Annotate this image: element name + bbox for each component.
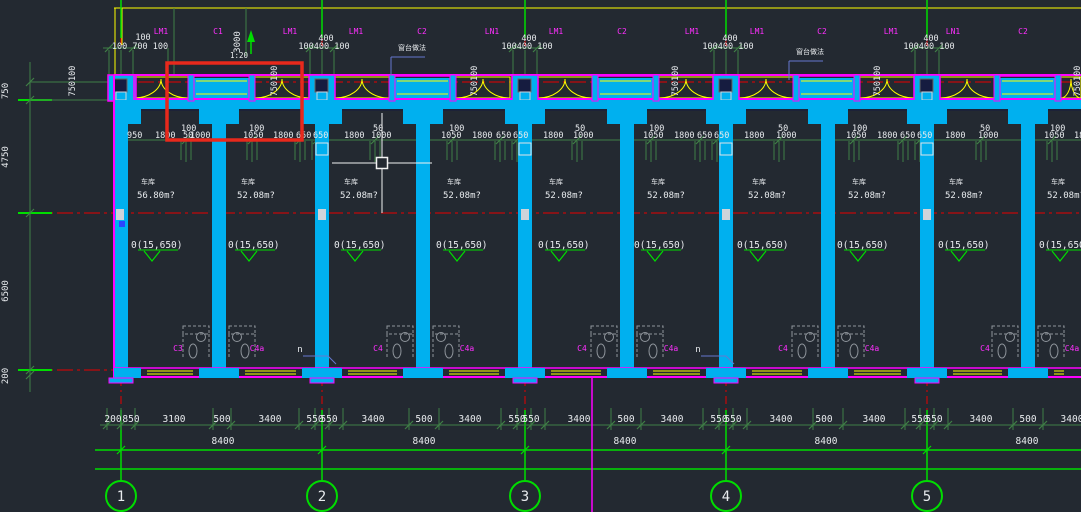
wall-base-tab bbox=[513, 378, 537, 383]
room-dim-text: 1050 bbox=[846, 131, 866, 141]
structural-column bbox=[719, 79, 732, 92]
room-area-label: 56.80m? bbox=[137, 191, 175, 201]
door-fixture-icon bbox=[838, 326, 864, 334]
door-fixture-icon bbox=[998, 344, 1006, 358]
elevation-triangle-icon bbox=[1052, 251, 1068, 261]
pier-dim-text: 750100 bbox=[470, 66, 480, 97]
room-name-label: 车库 bbox=[141, 177, 155, 186]
door-fixture-icon bbox=[189, 344, 197, 358]
door-type-label: C4a bbox=[664, 344, 679, 353]
room-dim-text: 1800 bbox=[674, 131, 694, 141]
door-type-label: C3 bbox=[173, 344, 183, 353]
elevation-text: 0(15,650) bbox=[938, 240, 989, 251]
grid-bubble-number: 1 bbox=[117, 489, 125, 505]
elevation-text: 0(15,650) bbox=[131, 240, 182, 251]
bottom-wall-pier bbox=[808, 368, 848, 378]
door-fixture-icon bbox=[229, 326, 255, 334]
room-area-label: 52.08m? bbox=[545, 191, 583, 201]
window-pier bbox=[1055, 75, 1061, 101]
bottom-dim-text: 3400 bbox=[661, 414, 684, 425]
bottom-dim-text: 3400 bbox=[568, 414, 591, 425]
bottom-dim-text: 550 bbox=[320, 414, 337, 425]
left-dim-text: 200 bbox=[1, 368, 11, 384]
door-type-label: C4a bbox=[865, 344, 880, 353]
wall-node-marker bbox=[116, 209, 124, 220]
pier-dim-text: 750100 bbox=[270, 66, 280, 97]
bay-total-text: 8400 bbox=[614, 436, 637, 447]
door-type-label: C4a bbox=[460, 344, 475, 353]
room-area-label: 52.08m? bbox=[443, 191, 481, 201]
room-name-label: 车库 bbox=[752, 177, 766, 186]
window-pier bbox=[854, 75, 860, 101]
bottom-dim-text: 500 bbox=[617, 414, 634, 425]
elevation-text: 0(15,650) bbox=[1039, 240, 1081, 251]
room-dim-text: 650 bbox=[313, 131, 328, 141]
elevation-triangle-icon bbox=[750, 251, 766, 261]
window-type-label: LN1 bbox=[485, 27, 500, 36]
bottom-dim-text: 3400 bbox=[770, 414, 793, 425]
door-fixture-icon bbox=[591, 326, 617, 334]
room-name-label: 车库 bbox=[1051, 177, 1065, 186]
room-dim-text: 1800 bbox=[744, 131, 764, 141]
room-dim-text: 1800 bbox=[344, 131, 364, 141]
door-fixture-icon bbox=[433, 326, 459, 334]
wall-base-tab bbox=[310, 378, 334, 383]
bottom-dim-text: 500 bbox=[213, 414, 230, 425]
vert-dim-text: 3000 bbox=[233, 31, 243, 53]
window-type-label: LM1 bbox=[154, 27, 169, 36]
bay-total-text: 8400 bbox=[413, 436, 436, 447]
elevation-triangle-icon bbox=[551, 251, 567, 261]
room-area-label: 52.08m? bbox=[848, 191, 886, 201]
grid-bubble-number: 2 bbox=[318, 489, 326, 505]
room-name-label: 车库 bbox=[651, 177, 665, 186]
bottom-wall-pier bbox=[706, 368, 746, 378]
room-dim-text: 650 bbox=[513, 131, 528, 141]
room-name-label: 车库 bbox=[241, 177, 255, 186]
top-dim-text: 100400 100 bbox=[298, 42, 349, 52]
bottom-dim-text: 3400 bbox=[863, 414, 886, 425]
elevation-triangle-icon bbox=[241, 251, 257, 261]
section-mark-label: n bbox=[297, 345, 302, 355]
room-dim-text: 1050 bbox=[441, 131, 461, 141]
window-type-label: LM1 bbox=[884, 27, 899, 36]
top-dim-text: 100400 100 bbox=[702, 42, 753, 52]
top-dim-text: 100400 100 bbox=[501, 42, 552, 52]
door-type-label: C4 bbox=[373, 344, 383, 353]
grid-bubble-number: 5 bbox=[923, 489, 931, 505]
elevation-text: 0(15,650) bbox=[228, 240, 279, 251]
room-area-label: 52.08m? bbox=[748, 191, 786, 201]
crosshair-pickbox[interactable] bbox=[377, 158, 388, 169]
wall bbox=[821, 100, 835, 368]
elevation-text: 0(15,650) bbox=[837, 240, 888, 251]
door-fixture-icon bbox=[445, 344, 453, 358]
room-dim-text: 650 bbox=[496, 131, 511, 141]
bottom-wall-pier bbox=[302, 368, 342, 378]
room-name-label: 车库 bbox=[549, 177, 563, 186]
bottom-dim-text: 3400 bbox=[1061, 414, 1081, 425]
window-pier bbox=[592, 75, 598, 101]
bay-total-text: 8400 bbox=[1016, 436, 1039, 447]
callout-text: 窗台做法 bbox=[796, 47, 824, 56]
top-dim-text: 100 700 100 bbox=[112, 42, 168, 52]
bottom-wall-pier bbox=[505, 368, 545, 378]
structural-column bbox=[518, 79, 531, 92]
elevation-triangle-icon bbox=[347, 251, 363, 261]
elevation-triangle-icon bbox=[951, 251, 967, 261]
elevation-text: 0(15,650) bbox=[334, 240, 385, 251]
door-fixture-icon bbox=[637, 326, 663, 334]
structural-column bbox=[114, 79, 127, 92]
window-pier bbox=[994, 75, 1000, 101]
grid-bubble-number: 4 bbox=[722, 489, 730, 505]
door-type-label: C4 bbox=[778, 344, 788, 353]
elevation-triangle-icon bbox=[850, 251, 866, 261]
selection-grip bbox=[119, 221, 125, 227]
window-type-label: LM1 bbox=[549, 27, 564, 36]
bottom-dim-text: 850 bbox=[122, 414, 139, 425]
cad-drawing-canvas[interactable]: 12345LM1C1LM1LM1C2LN1LM1C2LM1LM1C2LM1LN1… bbox=[0, 0, 1081, 512]
window-pier bbox=[653, 75, 659, 101]
wall-node-marker bbox=[923, 209, 931, 220]
pier-dim-text: 750100 bbox=[873, 66, 883, 97]
door-fixture-icon bbox=[597, 344, 605, 358]
door-fixture-icon bbox=[850, 344, 858, 358]
door-fixture-icon bbox=[798, 344, 806, 358]
bottom-dim-text: 3400 bbox=[459, 414, 482, 425]
window-type-label: LM1 bbox=[685, 27, 700, 36]
wall-base-tab bbox=[915, 378, 939, 383]
slope-arrow-head-icon bbox=[247, 30, 255, 42]
door-type-label: C4a bbox=[1065, 344, 1080, 353]
window-type-label: C2 bbox=[417, 27, 427, 36]
room-dim-text: 1050 bbox=[1044, 131, 1064, 141]
room-dim-text: 1000 bbox=[978, 131, 998, 141]
bottom-wall-pier bbox=[199, 368, 239, 378]
room-dim-text: 1800 bbox=[543, 131, 563, 141]
door-type-label: C4 bbox=[577, 344, 587, 353]
left-dim-text: 4750 bbox=[1, 146, 11, 168]
wall bbox=[416, 100, 430, 368]
window-pier bbox=[249, 75, 255, 101]
window-pier bbox=[188, 75, 194, 101]
bottom-dim-text: 3400 bbox=[362, 414, 385, 425]
elevation-triangle-icon bbox=[647, 251, 663, 261]
structural-column bbox=[315, 79, 328, 92]
room-dim-text: 1800 bbox=[1074, 131, 1081, 141]
room-area-label: 52.08m? bbox=[945, 191, 983, 201]
wall bbox=[1021, 100, 1035, 368]
room-dim-text: 650 bbox=[900, 131, 915, 141]
door-fixture-icon bbox=[792, 326, 818, 334]
bottom-dim-text: 550 bbox=[522, 414, 539, 425]
section-mark-label: n bbox=[695, 345, 700, 355]
room-dim-text: 650 bbox=[714, 131, 729, 141]
structural-column bbox=[920, 79, 933, 92]
window-type-label: LM1 bbox=[750, 27, 765, 36]
bottom-wall-pier bbox=[403, 368, 443, 378]
left-dim-text: 750 bbox=[1, 83, 11, 99]
bottom-dim-text: 3400 bbox=[970, 414, 993, 425]
elevation-triangle-icon bbox=[449, 251, 465, 261]
bay-total-text: 8400 bbox=[815, 436, 838, 447]
bottom-wall-pier bbox=[607, 368, 647, 378]
bottom-dim-text: 550 bbox=[724, 414, 741, 425]
door-fixture-icon bbox=[393, 344, 401, 358]
bottom-wall-pier bbox=[114, 368, 141, 378]
window-type-label: C1 bbox=[213, 27, 223, 36]
bay-total-text: 8400 bbox=[212, 436, 235, 447]
elevation-text: 0(15,650) bbox=[634, 240, 685, 251]
bottom-dim-text: 3100 bbox=[163, 414, 186, 425]
top-dim-text: 100400 100 bbox=[903, 42, 954, 52]
grid-bubble-number: 3 bbox=[521, 489, 529, 505]
room-dim-text: 1050 bbox=[643, 131, 663, 141]
elevation-triangle-icon bbox=[144, 251, 160, 261]
room-name-label: 车库 bbox=[447, 177, 461, 186]
window-type-label: C2 bbox=[617, 27, 627, 36]
pier-dim-text: 750100 bbox=[1073, 66, 1081, 97]
room-area-label: 52.08m? bbox=[647, 191, 685, 201]
room-dim-text: 1000 bbox=[371, 131, 391, 141]
wall-base-tab bbox=[714, 378, 738, 383]
window-type-label: LN1 bbox=[946, 27, 961, 36]
window-type-label: C2 bbox=[1018, 27, 1028, 36]
window-pier bbox=[389, 75, 395, 101]
window-type-label: LM1 bbox=[283, 27, 298, 36]
room-name-label: 车库 bbox=[852, 177, 866, 186]
door-type-label: C4 bbox=[980, 344, 990, 353]
room-dim-text: 650 bbox=[917, 131, 932, 141]
room-dim-text: 1800 bbox=[877, 131, 897, 141]
pier-dim-text: 750100 bbox=[68, 66, 78, 97]
bottom-dim-text: 200 bbox=[104, 414, 121, 425]
wall-node-marker bbox=[722, 209, 730, 220]
floor-plan-svg: 12345LM1C1LM1LM1C2LN1LM1C2LM1LM1C2LM1LN1… bbox=[0, 0, 1081, 512]
door-fixture-icon bbox=[241, 344, 249, 358]
left-dim-text: 6500 bbox=[1, 280, 11, 302]
callout-text: 窗台做法 bbox=[398, 43, 426, 52]
door-fixture-icon bbox=[183, 326, 209, 334]
pier-dim-text: 750100 bbox=[671, 66, 681, 97]
bottom-dim-text: 500 bbox=[415, 414, 432, 425]
door-fixture-icon bbox=[1050, 344, 1058, 358]
room-dim-text: 1800 bbox=[472, 131, 492, 141]
bottom-dim-text: 500 bbox=[815, 414, 832, 425]
elevation-text: 0(15,650) bbox=[436, 240, 487, 251]
slope-label: 1:20 bbox=[230, 51, 249, 60]
wall-node-marker bbox=[521, 209, 529, 220]
bottom-wall-pier bbox=[907, 368, 947, 378]
bottom-dim-text: 550 bbox=[925, 414, 942, 425]
room-dim-text: 1000 bbox=[573, 131, 593, 141]
elevation-text: 0(15,650) bbox=[538, 240, 589, 251]
room-dim-text: 1000 bbox=[776, 131, 796, 141]
bottom-wall-pier bbox=[1008, 368, 1048, 378]
door-fixture-icon bbox=[387, 326, 413, 334]
door-type-label: C4a bbox=[250, 344, 265, 353]
room-name-label: 车库 bbox=[344, 177, 358, 186]
wall-base-tab bbox=[109, 378, 133, 383]
wall-node-marker bbox=[318, 209, 326, 220]
room-area-label: 52.08m? bbox=[340, 191, 378, 201]
door-fixture-icon bbox=[992, 326, 1018, 334]
room-dim-text: 1800 bbox=[945, 131, 965, 141]
door-fixture-icon bbox=[1038, 326, 1064, 334]
room-dim-text: 650 bbox=[697, 131, 712, 141]
room-area-label: 52.08m? bbox=[237, 191, 275, 201]
bottom-dim-text: 500 bbox=[1019, 414, 1036, 425]
window-pier bbox=[450, 75, 456, 101]
window-type-label: C2 bbox=[817, 27, 827, 36]
room-area-label: 52.08m? bbox=[1047, 191, 1081, 201]
room-dim-text: 950 bbox=[127, 131, 142, 141]
wall bbox=[620, 100, 634, 368]
leader-line bbox=[328, 356, 336, 364]
window-pier bbox=[793, 75, 799, 101]
elevation-text: 0(15,650) bbox=[737, 240, 788, 251]
room-name-label: 车库 bbox=[949, 177, 963, 186]
door-fixture-icon bbox=[649, 344, 657, 358]
bottom-dim-text: 3400 bbox=[259, 414, 282, 425]
window-type-label: LM1 bbox=[349, 27, 364, 36]
